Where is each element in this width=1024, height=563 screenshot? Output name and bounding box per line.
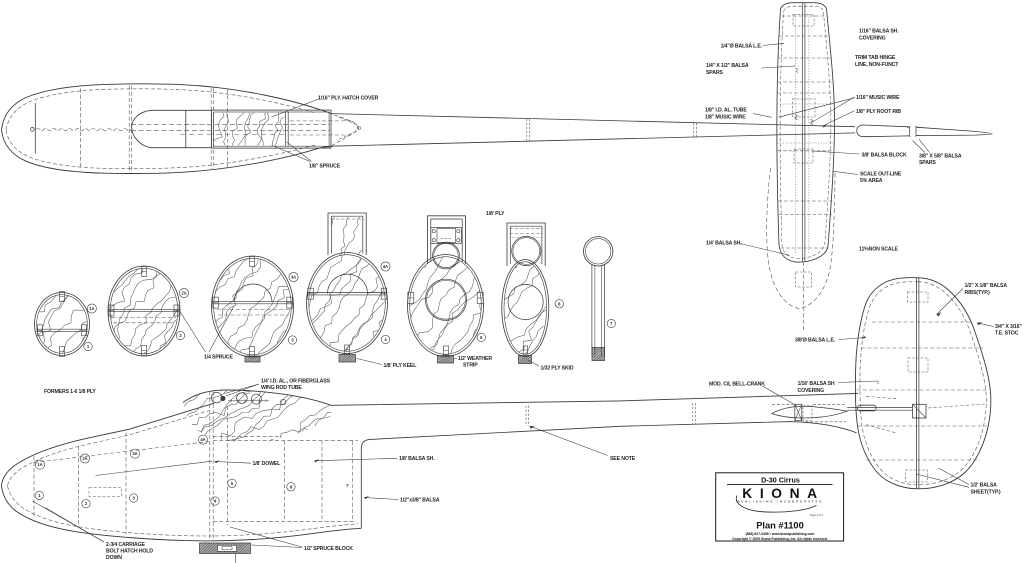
svg-text:1/16" MUSIC WIRE: 1/16" MUSIC WIRE [856, 95, 900, 101]
svg-text:1/16" BALSA SH.: 1/16" BALSA SH. [859, 29, 899, 35]
svg-text:1/2" X 1/8" BALSA: 1/2" X 1/8" BALSA [965, 283, 1008, 289]
svg-text:1/16" PLY. HATCH COVER: 1/16" PLY. HATCH COVER [318, 96, 379, 102]
svg-text:PUBLISHING INCORPORATED: PUBLISHING INCORPORATED [738, 500, 824, 504]
svg-text:1/8" MUSIC WIRE: 1/8" MUSIC WIRE [705, 114, 746, 120]
svg-text:1/8' DOWEL: 1/8' DOWEL [253, 461, 282, 467]
svg-text:1/8" SPRUCE: 1/8" SPRUCE [309, 164, 341, 170]
svg-text:3/8" X 5/8" BALSA: 3/8" X 5/8" BALSA [919, 153, 962, 159]
svg-text:FORMERS 1-6 1/8 PLY: FORMERS 1-6 1/8 PLY [44, 389, 96, 395]
svg-text:SPARS: SPARS [706, 70, 723, 76]
svg-text:1/2' WEATHER: 1/2' WEATHER [458, 356, 492, 362]
svg-text:2A: 2A [82, 456, 87, 461]
svg-text:1/32 PLY SKID: 1/32 PLY SKID [541, 366, 574, 372]
svg-text:KIONA: KIONA [742, 486, 824, 501]
svg-text:1/8' BALSA SH.: 1/8' BALSA SH. [399, 456, 435, 462]
svg-text:Page 2 of 2: Page 2 of 2 [810, 513, 824, 517]
svg-text:1/2"x3/8" BALSA: 1/2"x3/8" BALSA [400, 498, 440, 504]
svg-text:4A: 4A [200, 437, 205, 442]
svg-text:2-3/4 CARRIAGE: 2-3/4 CARRIAGE [106, 542, 146, 548]
svg-text:LINE, NON-FUNCT: LINE, NON-FUNCT [855, 62, 899, 68]
svg-text:BOLT HATCH HOLD: BOLT HATCH HOLD [106, 549, 153, 555]
svg-text:3/8' BALSA BLOCK: 3/8' BALSA BLOCK [862, 152, 907, 158]
svg-text:1/4' BALSA SH.: 1/4' BALSA SH. [706, 241, 742, 247]
svg-text:1/4"Ø BALSA L.E.: 1/4"Ø BALSA L.E. [721, 44, 763, 50]
svg-text:T.E. STOC: T.E. STOC [995, 331, 1019, 337]
svg-text:1/8" I.D. AL. TUBE: 1/8" I.D. AL. TUBE [705, 108, 747, 114]
svg-text:SHEET(TYP.): SHEET(TYP.) [971, 489, 1001, 495]
svg-text:1A: 1A [89, 306, 94, 311]
svg-text:1/8' PLY KEEL: 1/8' PLY KEEL [384, 363, 418, 369]
svg-text:D-30 Cirrus: D-30 Cirrus [761, 476, 800, 485]
svg-text:1/2' SPRUCE BLOCK: 1/2' SPRUCE BLOCK [304, 546, 353, 552]
svg-text:3/8'Ø BALSA L.E.: 3/8'Ø BALSA L.E. [795, 338, 836, 344]
svg-text:1/2' BALSA: 1/2' BALSA [971, 483, 998, 489]
svg-text:STRIP: STRIP [463, 363, 478, 369]
svg-text:1/4 SPRUCE: 1/4 SPRUCE [204, 355, 233, 361]
svg-text:11%NON SCALE: 11%NON SCALE [859, 247, 899, 253]
svg-text:(888) 627-0456 • www.kionapubl: (888) 627-0456 • www.kionapublishing.com [746, 532, 815, 536]
svg-text:RIBS(TYP.): RIBS(TYP.) [965, 290, 991, 296]
svg-text:1/4' I.D. AL., OR FIBERGLASS: 1/4' I.D. AL., OR FIBERGLASS [261, 378, 331, 384]
svg-text:COVERING: COVERING [859, 35, 886, 41]
svg-text:3A: 3A [291, 275, 296, 280]
svg-text:2A: 2A [181, 291, 186, 296]
svg-text:SEE NOTE: SEE NOTE [610, 456, 636, 462]
svg-text:SCALE OUT-LINE: SCALE OUT-LINE [860, 171, 902, 177]
svg-text:COVERING: COVERING [798, 388, 825, 394]
svg-text:5% AREA: 5% AREA [860, 178, 883, 184]
svg-text:Copyright © 2005 Kiona Publish: Copyright © 2005 Kiona Publishing, Inc. … [732, 537, 828, 541]
svg-text:MOD. C/L BELL-CRANK: MOD. C/L BELL-CRANK [709, 382, 765, 388]
svg-text:1A: 1A [37, 462, 42, 467]
svg-text:1/8" PLY ROOT RIB: 1/8" PLY ROOT RIB [856, 109, 901, 115]
svg-text:DOWN: DOWN [106, 555, 122, 561]
svg-text:1/16' BALSA SH: 1/16' BALSA SH [798, 381, 835, 387]
svg-text:SPARS: SPARS [919, 160, 936, 166]
svg-text:3/4" X 3/16": 3/4" X 3/16" [995, 324, 1022, 330]
svg-text:1/8' PLY: 1/8' PLY [486, 211, 505, 217]
svg-text:Plan #1100: Plan #1100 [756, 520, 804, 530]
svg-text:1/4" X 1/2" BALSA: 1/4" X 1/2" BALSA [706, 63, 749, 69]
svg-text:4A: 4A [383, 264, 388, 269]
svg-text:3A: 3A [132, 451, 137, 456]
svg-text:TRIM TAB HINGE: TRIM TAB HINGE [855, 55, 896, 61]
svg-text:WING ROD TUBE: WING ROD TUBE [261, 385, 302, 391]
